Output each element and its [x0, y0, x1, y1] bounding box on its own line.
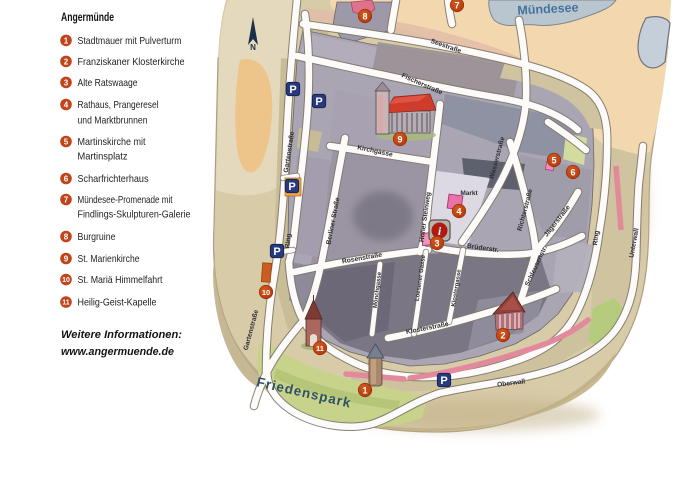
- svg-text:10: 10: [62, 277, 70, 284]
- svg-text:Franziskaner Klosterkirche: Franziskaner Klosterkirche: [78, 57, 185, 68]
- svg-text:Mündesee-Promenade mit: Mündesee-Promenade mit: [78, 195, 173, 206]
- svg-text:1: 1: [362, 385, 367, 395]
- svg-text:P: P: [315, 96, 322, 108]
- svg-text:5: 5: [551, 155, 556, 165]
- svg-text:Stadtmauer mit Pulverturm: Stadtmauer mit Pulverturm: [78, 36, 182, 47]
- svg-text:2: 2: [500, 330, 505, 340]
- svg-text:St. Marienkirche: St. Marienkirche: [78, 254, 140, 265]
- svg-text:1: 1: [64, 36, 69, 45]
- svg-text:P: P: [288, 181, 295, 193]
- svg-text:Angermünde: Angermünde: [61, 10, 114, 24]
- svg-text:8: 8: [362, 11, 367, 21]
- svg-text:Heilig-Geist-Kapelle: Heilig-Geist-Kapelle: [78, 298, 157, 309]
- svg-text:Weitere Informationen:: Weitere Informationen:: [61, 329, 182, 341]
- svg-text:N: N: [250, 43, 256, 52]
- svg-text:5: 5: [64, 137, 69, 146]
- svg-text:www.angermuende.de: www.angermuende.de: [61, 346, 174, 358]
- svg-text:Scharfrichterhaus: Scharfrichterhaus: [78, 174, 149, 185]
- svg-text:Markt: Markt: [460, 190, 478, 197]
- svg-text:11: 11: [316, 344, 324, 353]
- svg-text:Findlings-Skulpturen-Galerie: Findlings-Skulpturen-Galerie: [78, 210, 191, 221]
- svg-text:Martinskirche mit: Martinskirche mit: [78, 137, 146, 148]
- svg-text:P: P: [440, 375, 447, 387]
- svg-text:9: 9: [64, 254, 69, 263]
- svg-text:Burgruine: Burgruine: [78, 232, 116, 243]
- svg-text:Alte Ratswaage: Alte Ratswaage: [78, 78, 138, 89]
- svg-text:Martinsplatz: Martinsplatz: [78, 152, 128, 163]
- svg-text:7: 7: [64, 195, 69, 204]
- svg-text:3: 3: [64, 78, 69, 87]
- svg-text:10: 10: [262, 288, 270, 297]
- svg-text:6: 6: [570, 167, 575, 177]
- svg-text:6: 6: [64, 174, 69, 183]
- svg-text:7: 7: [454, 0, 459, 10]
- svg-text:Rathaus, Prangeresel: Rathaus, Prangeresel: [78, 100, 159, 111]
- svg-text:P: P: [289, 84, 296, 96]
- svg-text:8: 8: [64, 232, 69, 241]
- svg-text:und Marktbrunnen: und Marktbrunnen: [78, 115, 148, 126]
- svg-text:11: 11: [62, 300, 70, 307]
- svg-text:4: 4: [456, 206, 461, 216]
- svg-text:P: P: [273, 246, 280, 258]
- svg-text:St. Mariä Himmelfahrt: St. Mariä Himmelfahrt: [78, 275, 163, 286]
- svg-text:4: 4: [64, 100, 69, 109]
- svg-text:2: 2: [64, 57, 69, 66]
- svg-text:9: 9: [397, 134, 402, 144]
- svg-text:3: 3: [434, 238, 439, 248]
